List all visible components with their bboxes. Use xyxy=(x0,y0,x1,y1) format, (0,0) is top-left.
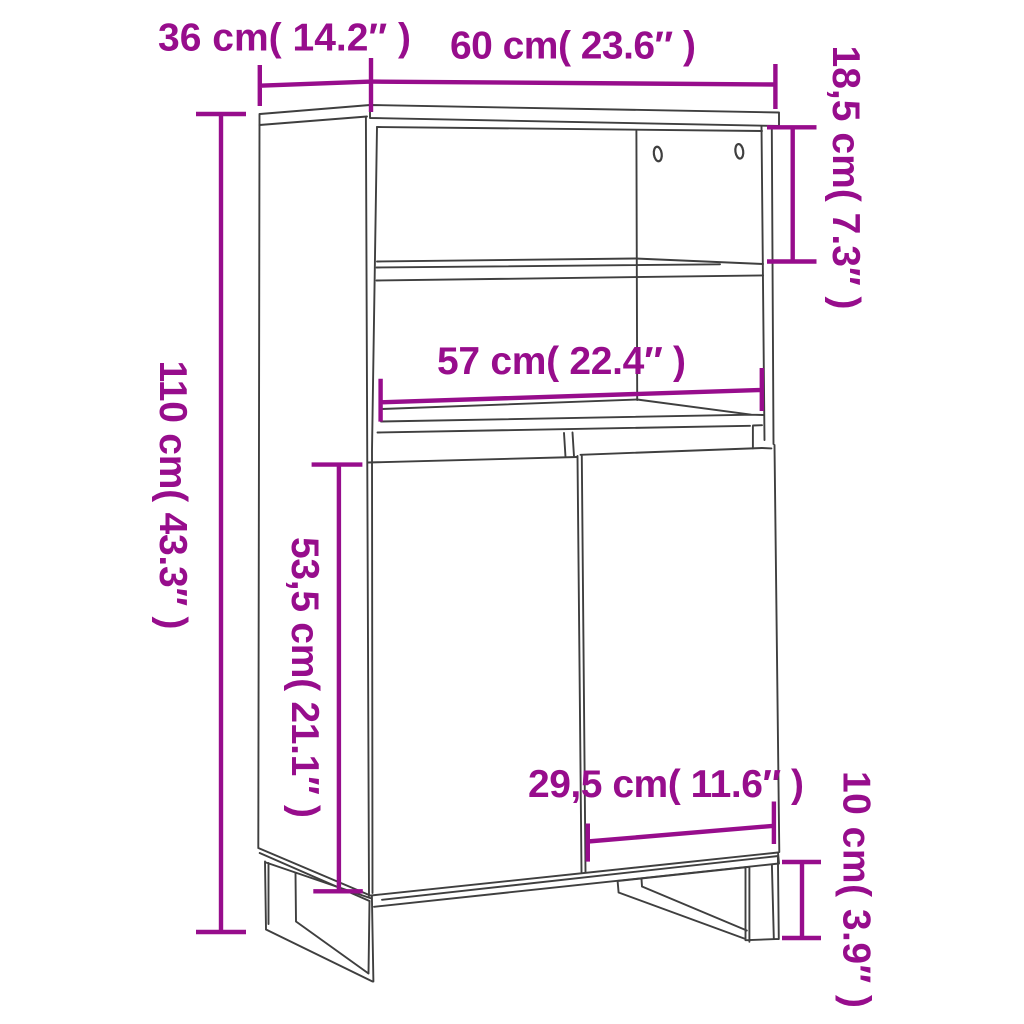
svg-text:10 cm( 3.9″ ): 10 cm( 3.9″ ) xyxy=(835,771,878,1008)
svg-text:53,5 cm( 21.1″ ): 53,5 cm( 21.1″ ) xyxy=(283,537,326,818)
svg-text:36 cm( 14.2″ ): 36 cm( 14.2″ ) xyxy=(158,17,411,60)
svg-text:57 cm( 22.4″ ): 57 cm( 22.4″ ) xyxy=(437,340,686,383)
svg-text:110 cm( 43.3″ ): 110 cm( 43.3″ ) xyxy=(151,361,194,630)
svg-text:60 cm( 23.6″ ): 60 cm( 23.6″ ) xyxy=(450,25,696,68)
svg-text:29,5 cm( 11.6″ ): 29,5 cm( 11.6″ ) xyxy=(528,763,804,806)
svg-text:18,5 cm( 7.3″ ): 18,5 cm( 7.3″ ) xyxy=(824,46,867,310)
